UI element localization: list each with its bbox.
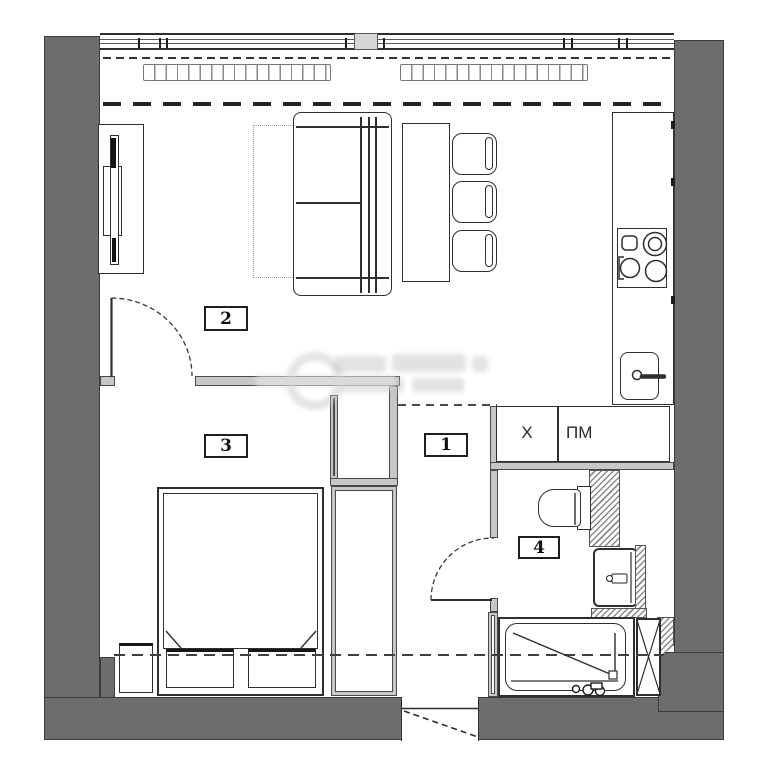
watermark-block: [392, 354, 466, 372]
window-tick: [383, 38, 385, 48]
floor-plan-canvas: Х ПМ 2 3 1 4: [0, 0, 781, 768]
wall-right: [674, 40, 724, 740]
dishwasher-label: ПМ: [566, 423, 626, 443]
window-sill-dashed-line: [103, 57, 673, 59]
tv-screen-dark2: [112, 238, 116, 262]
wall-bottom-right-bulge: [658, 652, 724, 712]
chair-back: [485, 185, 493, 218]
watermark-block: [334, 356, 386, 372]
closet-upper-side-wall-core: [333, 398, 335, 476]
wall-bottom: [44, 697, 724, 740]
radiator-left: [143, 64, 331, 81]
washing-machine: [636, 618, 661, 696]
partition-closet-top: [330, 478, 398, 486]
chair: [452, 181, 497, 223]
window-tick: [138, 38, 140, 48]
bedroom-door-arc: [112, 298, 193, 376]
closet-upper-side-wall: [330, 395, 338, 479]
chair-back: [485, 137, 493, 170]
room-label-bathroom: 4: [518, 536, 560, 559]
window-tick: [345, 38, 347, 48]
sofa-back-line: [375, 117, 377, 293]
sofa: [293, 112, 392, 296]
partition-living-bedroom-stub: [100, 376, 115, 386]
section-dashed-line: [114, 654, 664, 656]
room-label-bedroom: 3: [204, 434, 248, 458]
bedroom-closet: [331, 486, 397, 696]
sofa-seat-divider: [296, 202, 362, 204]
bathtub-inner: [505, 623, 626, 691]
watermark-block: [412, 378, 464, 392]
window-tick: [563, 38, 565, 48]
room-label-bedroom-text: 3: [220, 436, 232, 456]
radiator-right: [400, 64, 588, 81]
sofa-back-line: [360, 117, 362, 293]
watermark-wall-fade: [256, 374, 396, 388]
window-frame-line: [100, 39, 674, 40]
zone-boundary-dashed-line: [398, 404, 497, 406]
bed-mattress: [163, 493, 318, 649]
chair: [452, 133, 497, 175]
window-tick: [159, 38, 161, 48]
window-frame-line: [100, 43, 674, 44]
chair: [452, 230, 497, 272]
bedroom-closet-interior: [335, 490, 393, 692]
water-heater: [593, 548, 638, 607]
nightstand: [119, 643, 153, 693]
entrance-opening: [401, 697, 479, 741]
toilet-bowl: [538, 489, 581, 527]
wall-hatch-vertical: [635, 545, 646, 610]
chair-back: [485, 234, 493, 267]
window-tick: [166, 38, 168, 48]
tv-screen-dark: [111, 138, 116, 168]
window-band: [100, 33, 674, 50]
wall-left: [44, 36, 100, 740]
dining-table: [402, 123, 450, 282]
wall-left-step: [100, 657, 115, 698]
fridge-label: Х: [496, 423, 558, 443]
duct-shaft-hatch: [589, 470, 620, 547]
partition-bathroom-left-upper: [490, 470, 498, 538]
bathroom-door-arc: [431, 538, 494, 600]
window-pier: [354, 33, 378, 50]
watermark-block: [472, 356, 488, 372]
partition-bathroom-left-stub: [490, 598, 498, 612]
room-label-hallway-text: 1: [440, 435, 452, 455]
partition-closet-vertical: [389, 386, 398, 480]
stove: [617, 228, 667, 288]
window-tick: [571, 38, 573, 48]
partition-kitchen-bathroom: [490, 462, 674, 470]
room-label-hallway: 1: [424, 433, 468, 457]
room-label-living-text: 2: [220, 309, 232, 329]
window-tick: [626, 38, 628, 48]
loggia-boundary-dashed-line: [103, 102, 673, 106]
room-label-bathroom-text: 4: [533, 538, 545, 558]
sofa-back-line: [368, 117, 370, 293]
window-tick: [618, 38, 620, 48]
room-label-living: 2: [204, 306, 248, 331]
kitchen-sink: [620, 352, 659, 400]
